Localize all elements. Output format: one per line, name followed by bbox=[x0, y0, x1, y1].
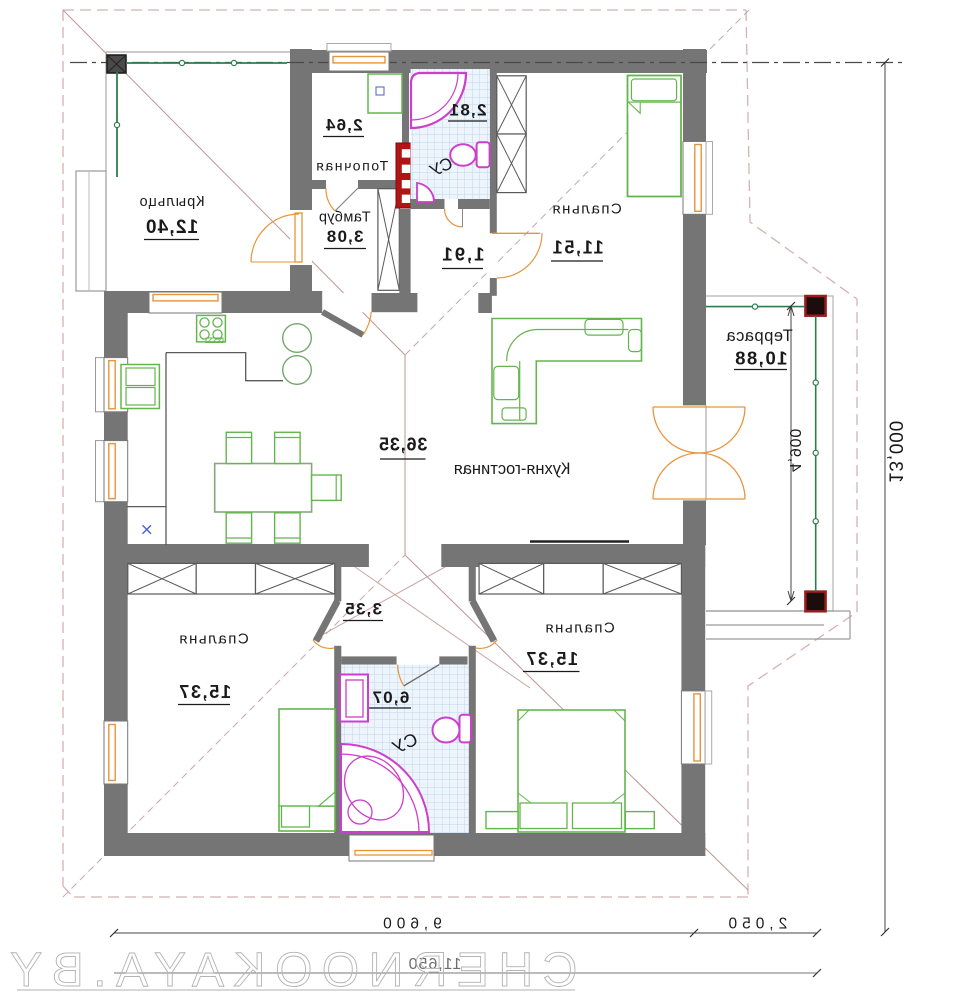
svg-text:Кухня-гостиная: Кухня-гостиная bbox=[454, 460, 571, 478]
svg-text:Спальня: Спальня bbox=[551, 201, 622, 218]
svg-text:2,050: 2,050 bbox=[724, 916, 788, 933]
svg-text:Спальня: Спальня bbox=[544, 620, 615, 637]
svg-text:Топочная: Топочная bbox=[315, 158, 389, 174]
svg-text:CHERNOOKAYA.BY: CHERNOOKAYA.BY bbox=[1, 944, 578, 997]
svg-text:3,08: 3,08 bbox=[326, 227, 364, 246]
svg-text:10,88: 10,88 bbox=[734, 348, 788, 369]
svg-text:Терраса: Терраса bbox=[726, 327, 793, 345]
svg-text:1,91: 1,91 bbox=[440, 244, 484, 265]
svg-text:2,81: 2,81 bbox=[449, 101, 487, 120]
svg-text:4,900: 4,900 bbox=[786, 428, 803, 472]
svg-text:Крыльцо: Крыльцо bbox=[139, 194, 205, 210]
svg-text:Тамбур: Тамбур bbox=[318, 210, 370, 226]
svg-text:12,40: 12,40 bbox=[145, 217, 199, 238]
svg-text:15,37: 15,37 bbox=[525, 649, 579, 669]
svg-text:11,51: 11,51 bbox=[551, 238, 604, 258]
svg-text:36,35: 36,35 bbox=[378, 435, 427, 455]
svg-text:9,600: 9,600 bbox=[378, 916, 442, 933]
svg-text:13,000: 13,000 bbox=[885, 420, 906, 483]
svg-text:Спальня: Спальня bbox=[178, 631, 249, 648]
svg-text:2,64: 2,64 bbox=[325, 116, 363, 135]
svg-text:3,35: 3,35 bbox=[344, 600, 382, 619]
svg-text:15,37: 15,37 bbox=[178, 682, 232, 702]
svg-text:6,07: 6,07 bbox=[371, 688, 409, 707]
